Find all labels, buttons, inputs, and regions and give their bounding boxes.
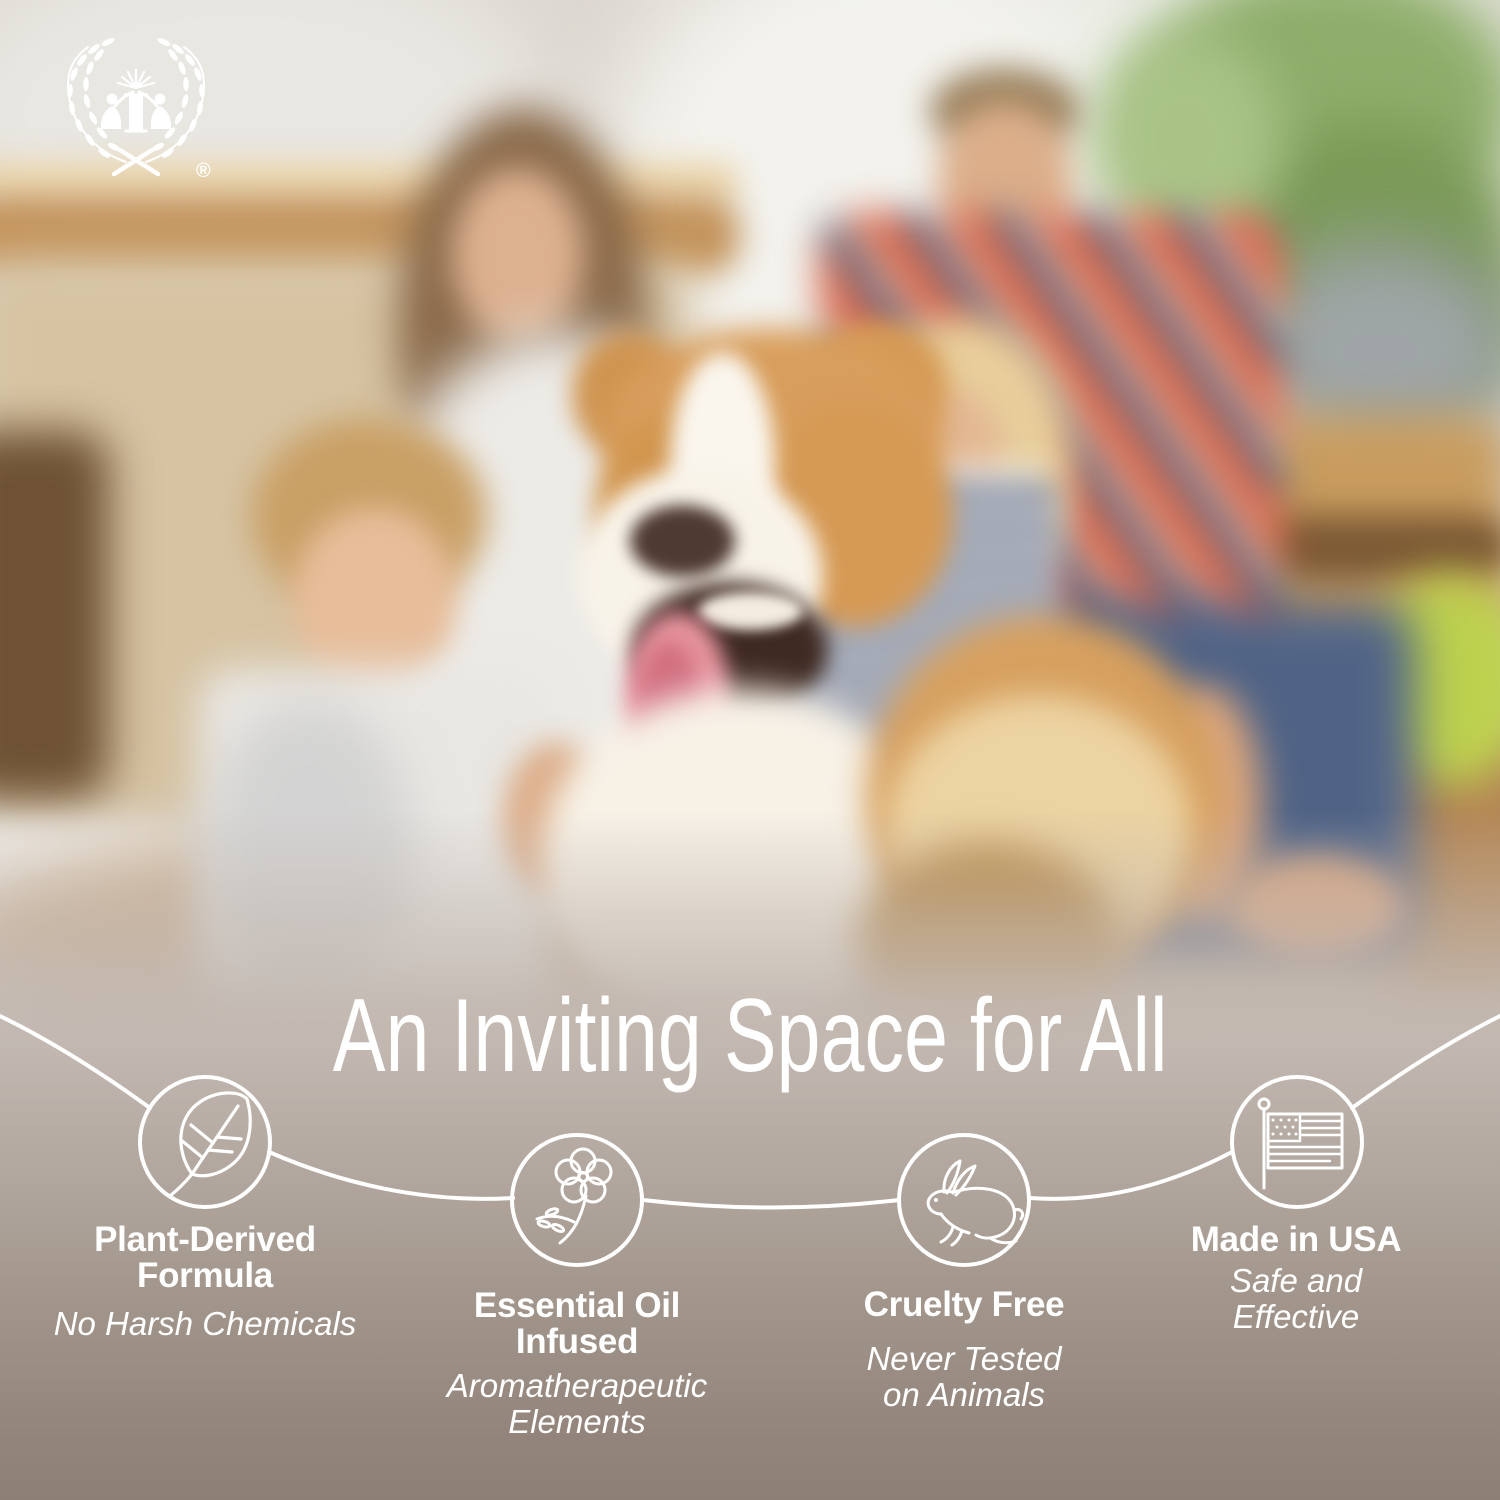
flower-icon [537, 1149, 611, 1243]
registered-trademark: ® [196, 160, 211, 183]
logo-right-figure [139, 92, 171, 129]
brand-logo-wreath-icon [67, 37, 206, 174]
feature-subtitle-line: Safe and [1046, 1263, 1500, 1299]
feature-subtitle-line: Never Tested [714, 1341, 1214, 1377]
us-flag-icon [1259, 1099, 1342, 1188]
logo-left-figure [101, 92, 133, 129]
headline: An Inviting Space for All [0, 982, 1500, 1091]
feature-title-line: Made in USA [1046, 1222, 1500, 1258]
feature-subtitle-line: Effective [1046, 1299, 1500, 1335]
leaf-icon [170, 1093, 250, 1196]
product-infographic: ® An Inviting Space for All Plant-Derive… [0, 0, 1500, 1500]
logo-column [118, 70, 154, 131]
feature-title-line: Plant-Derived [0, 1222, 455, 1258]
feature-subtitle-line: on Animals [714, 1377, 1214, 1413]
headline-text: An Inviting Space for All [333, 982, 1168, 1091]
feature-made-in-usa: Made in USA Safe and Effective [1046, 1222, 1500, 1335]
rabbit-icon [928, 1161, 1022, 1245]
